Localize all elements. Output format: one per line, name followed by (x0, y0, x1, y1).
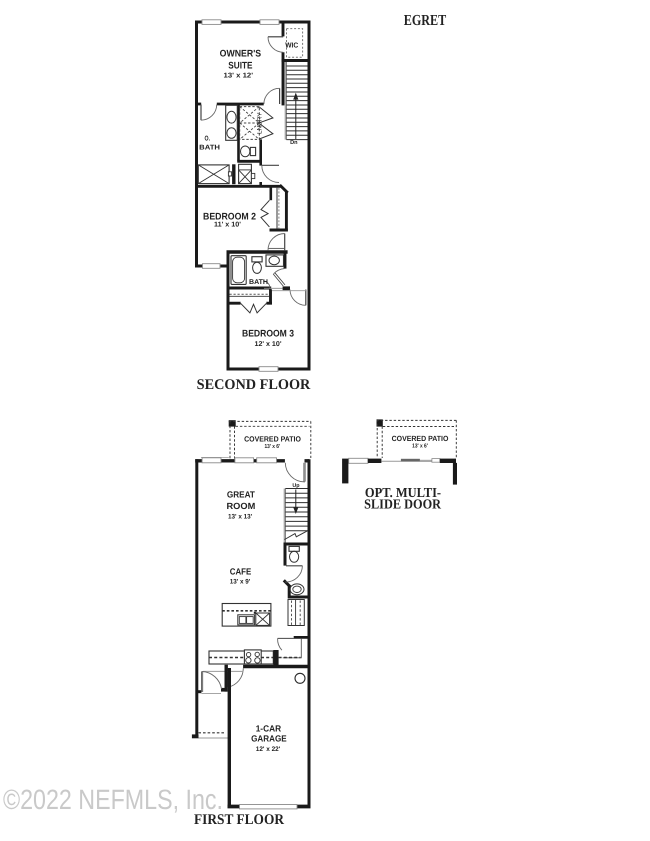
svg-text:LNDRY: LNDRY (257, 112, 264, 134)
svg-text:COVERED PATIO: COVERED PATIO (392, 434, 449, 443)
svg-text:COVERED PATIO: COVERED PATIO (244, 435, 301, 444)
svg-text:13' x 12': 13' x 12' (224, 72, 254, 79)
svg-text:EGRET: EGRET (404, 12, 447, 29)
svg-text:13' x 13': 13' x 13' (228, 513, 253, 520)
svg-text:BEDROOM 3: BEDROOM 3 (242, 329, 294, 340)
svg-text:12' x 10': 12' x 10' (255, 341, 282, 348)
svg-text:SECOND FLOOR: SECOND FLOOR (197, 377, 311, 393)
svg-text:WIC: WIC (285, 41, 298, 50)
svg-text:O.: O. (205, 135, 211, 142)
svg-text:SLIDE DOOR: SLIDE DOOR (364, 497, 442, 512)
svg-text:13' x 9': 13' x 9' (230, 579, 251, 586)
svg-text:OWNER'S: OWNER'S (220, 49, 262, 60)
svg-text:BATH: BATH (199, 145, 220, 152)
svg-text:SUITE: SUITE (228, 60, 253, 71)
svg-text:1-CAR: 1-CAR (256, 723, 282, 733)
svg-text:©2022 NEFMLS, Inc.: ©2022 NEFMLS, Inc. (3, 784, 223, 815)
svg-text:13' x 6': 13' x 6' (412, 443, 428, 450)
svg-text:CAFE: CAFE (230, 567, 252, 577)
svg-text:GARAGE: GARAGE (251, 734, 287, 744)
svg-text:11' x 10': 11' x 10' (214, 222, 241, 229)
svg-text:GREAT: GREAT (227, 490, 256, 500)
svg-text:BATH: BATH (249, 279, 268, 286)
svg-text:12' x 22': 12' x 22' (256, 746, 281, 753)
svg-text:Dn: Dn (290, 140, 298, 146)
svg-text:ROOM: ROOM (227, 501, 256, 511)
svg-text:FIRST FLOOR: FIRST FLOOR (194, 812, 284, 828)
svg-text:13' x 6': 13' x 6' (264, 443, 280, 450)
